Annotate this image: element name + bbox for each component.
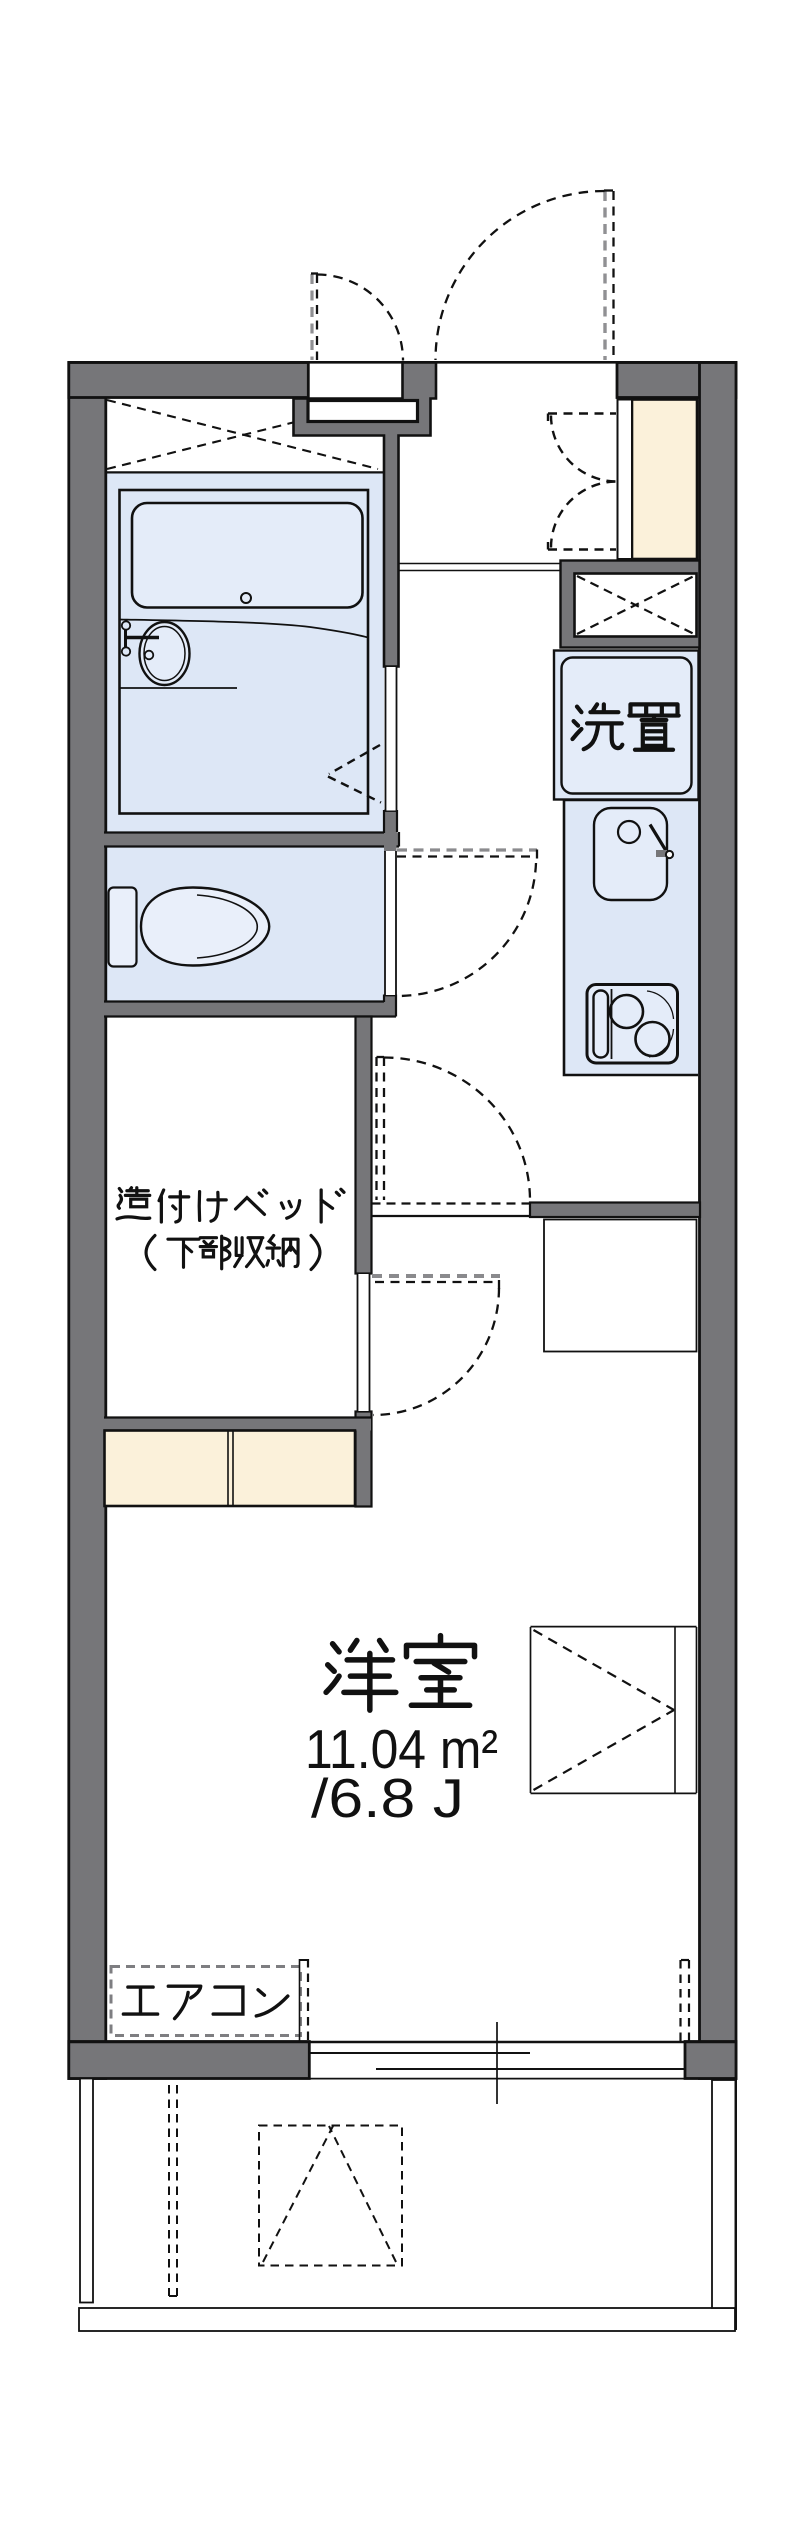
svg-text:/6.8 J: /6.8 J	[311, 1767, 464, 1829]
